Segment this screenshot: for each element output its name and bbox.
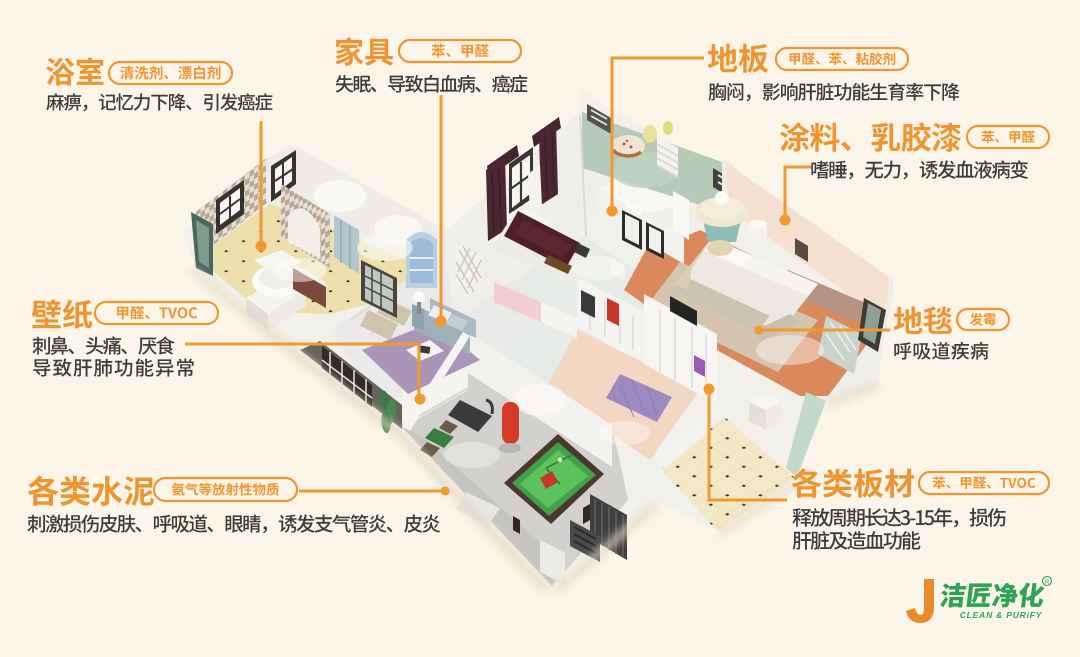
svg-text:R: R xyxy=(1045,579,1050,586)
svg-text:CLEAN & PURiFY: CLEAN & PURiFY xyxy=(960,610,1043,620)
